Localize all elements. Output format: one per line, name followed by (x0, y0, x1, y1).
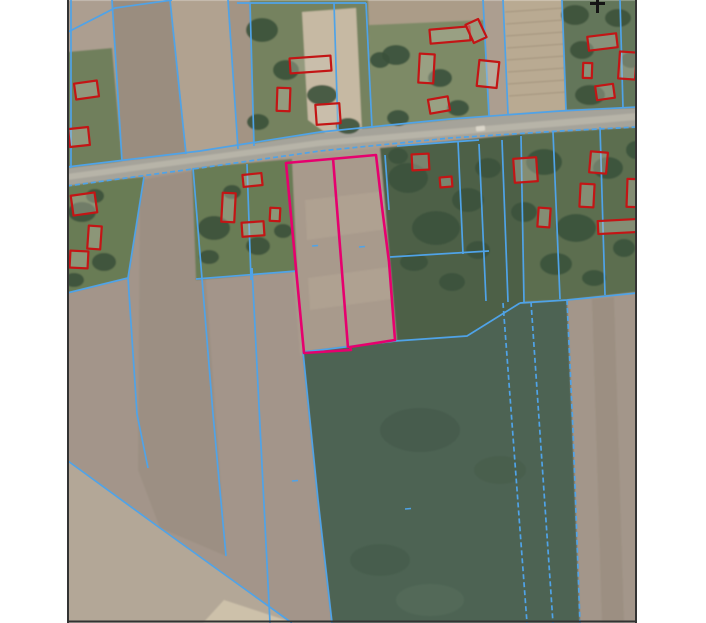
building-outline (71, 192, 98, 215)
building-outline (68, 127, 90, 147)
building-outline (537, 208, 550, 228)
survey-tick (359, 247, 365, 248)
tree-canopy (382, 45, 410, 65)
survey-tick (312, 246, 318, 247)
tree-canopy (199, 250, 219, 264)
tree-canopy (605, 9, 631, 27)
building-outline (70, 251, 89, 269)
building-outline (87, 226, 102, 250)
tree-canopy (466, 241, 490, 259)
tree-canopy (613, 239, 635, 257)
building-outline (221, 193, 235, 223)
map-viewport[interactable] (0, 0, 706, 623)
tree-canopy (380, 408, 460, 452)
building-outline (242, 173, 262, 187)
building-outline (598, 219, 639, 234)
tree-canopy (247, 114, 269, 130)
building-outline (315, 103, 340, 125)
cadastral-aerial-map[interactable] (0, 0, 706, 623)
building-outline (242, 221, 265, 237)
building-outline (579, 184, 594, 208)
tree-canopy (412, 211, 460, 245)
map-layers (64, 0, 646, 623)
tree-canopy (511, 202, 537, 222)
aerial-photo-layer (64, 0, 646, 623)
tree-canopy (474, 456, 526, 484)
tree-canopy (92, 253, 116, 271)
building-outline (595, 84, 615, 100)
building-outline (74, 80, 99, 99)
survey-tick (292, 481, 298, 482)
building-outline (477, 60, 500, 88)
building-outline (513, 157, 538, 183)
tree-canopy (439, 273, 465, 291)
tree-canopy (556, 214, 596, 242)
vehicle-on-road (476, 126, 485, 132)
tree-canopy (540, 253, 572, 275)
building-outline (618, 51, 637, 79)
building-outline (429, 26, 470, 43)
building-outline (418, 54, 434, 84)
building-outline (587, 33, 617, 50)
building-outline (290, 56, 332, 74)
tree-canopy (452, 188, 484, 212)
building-outline (440, 176, 453, 187)
tree-canopy (274, 224, 292, 238)
building-outline (270, 208, 281, 222)
building-outline (583, 63, 593, 78)
tree-canopy (307, 85, 337, 105)
building-outline (428, 96, 450, 113)
tree-canopy (396, 584, 464, 616)
building-outline (277, 88, 291, 111)
tree-canopy (561, 5, 589, 25)
field-big-green-field (303, 300, 580, 623)
tree-canopy (350, 544, 410, 576)
tree-canopy (388, 148, 408, 164)
building-outline (412, 154, 430, 171)
tree-canopy (475, 158, 501, 178)
building-outline (589, 151, 608, 173)
survey-tick (405, 509, 411, 510)
tree-canopy (582, 270, 606, 286)
